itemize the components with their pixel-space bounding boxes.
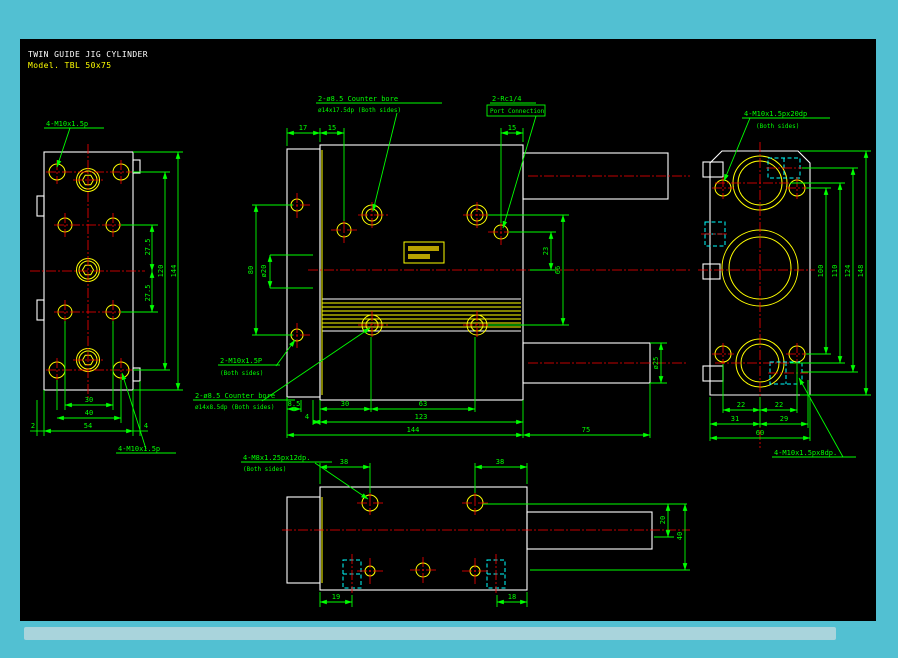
dim-100: 100 [817,265,825,278]
dim-17: 17 [299,124,307,132]
dim-18: 18 [508,593,516,601]
thread-label-line2: (Both sides) [220,370,263,377]
dim-22-right: 22 [775,401,783,409]
counterbore-bottom-label-line2: ø14x8.5dp (Both sides) [195,404,274,411]
dim-144-front: 144 [407,426,420,434]
dim-31: 31 [731,415,739,423]
dim-27-5-bottom: 27.5 [144,285,152,302]
dim-63: 63 [419,400,427,408]
dim-38-right: 38 [496,458,504,466]
dim-30-front: 30 [341,400,349,408]
dim-2: 2 [31,422,35,430]
dim-75: 75 [582,426,590,434]
dim-15-left: 15 [328,124,336,132]
cad-window: TWIN GUIDE JIG CYLINDER Model. TBL 50x75 [0,0,898,658]
horizontal-scrollbar[interactable] [24,627,836,640]
dim-27-5-top: 27.5 [144,239,152,256]
bottom-view-thread-label-line1: 4-M8x1.25px12dp. [243,454,310,462]
dim-20: 20 [659,516,667,524]
drawing-title: TWIN GUIDE JIG CYLINDER [28,50,148,59]
counterbore-top-label-line2: ø14x17.5dp (Both sides) [318,107,401,114]
right-view-bottom-thread-label: 4-M10x1.5px8dp. [774,449,837,457]
dim-4-left-view: 4 [144,422,148,430]
left-view-bottom-thread-label: 4-M10x1.5p [118,445,160,453]
dim-60: 60 [756,429,764,437]
dim-15-right: 15 [508,124,516,132]
port-label-line2: Port Connection [490,108,545,115]
drawing-canvas [20,39,876,621]
dim-120: 120 [157,265,165,278]
dim-144-left-view: 144 [170,265,178,278]
dim-dia25: ø25 [652,357,660,370]
dim-124: 124 [844,265,852,278]
dim-23: 23 [542,247,550,255]
counterbore-bottom-label-line1: 2-ø8.5 Counter bore [195,392,275,400]
bottom-view-thread-label-line2: (Both sides) [243,466,286,473]
right-view-top-thread-label-line1: 4-M10x1.5px20dp [744,110,807,118]
dim-38-left: 38 [340,458,348,466]
dim-40-bottom: 40 [676,532,684,540]
dim-66: 66 [554,266,562,274]
dim-19: 19 [332,593,340,601]
drawing-model: Model. TBL 50x75 [28,61,111,70]
dim-29: 29 [780,415,788,423]
dim-54: 54 [84,422,92,430]
thread-label-line1: 2-M10x1.5P [220,357,262,365]
dim-4-front: 4 [305,413,309,421]
right-view-top-thread-label-line2: (Both sides) [756,123,799,130]
dim-123: 123 [415,413,428,421]
dim-30-left-view: 30 [85,396,93,404]
dim-40-left-view: 40 [85,409,93,417]
dim-110: 110 [831,265,839,278]
dim-dia20: ø20 [260,265,268,278]
left-view-top-thread-label: 4-M10x1.5p [46,120,88,128]
port-label-line1: 2-Rc1/4 [492,95,522,103]
dim-22-left: 22 [737,401,745,409]
counterbore-top-label-line1: 2-ø8.5 Counter bore [318,95,398,103]
cad-drawing: TWIN GUIDE JIG CYLINDER Model. TBL 50x75 [0,0,898,658]
dim-8-5: 8.5 [288,400,301,408]
dim-148: 148 [857,265,865,278]
dim-80: 80 [247,266,255,274]
